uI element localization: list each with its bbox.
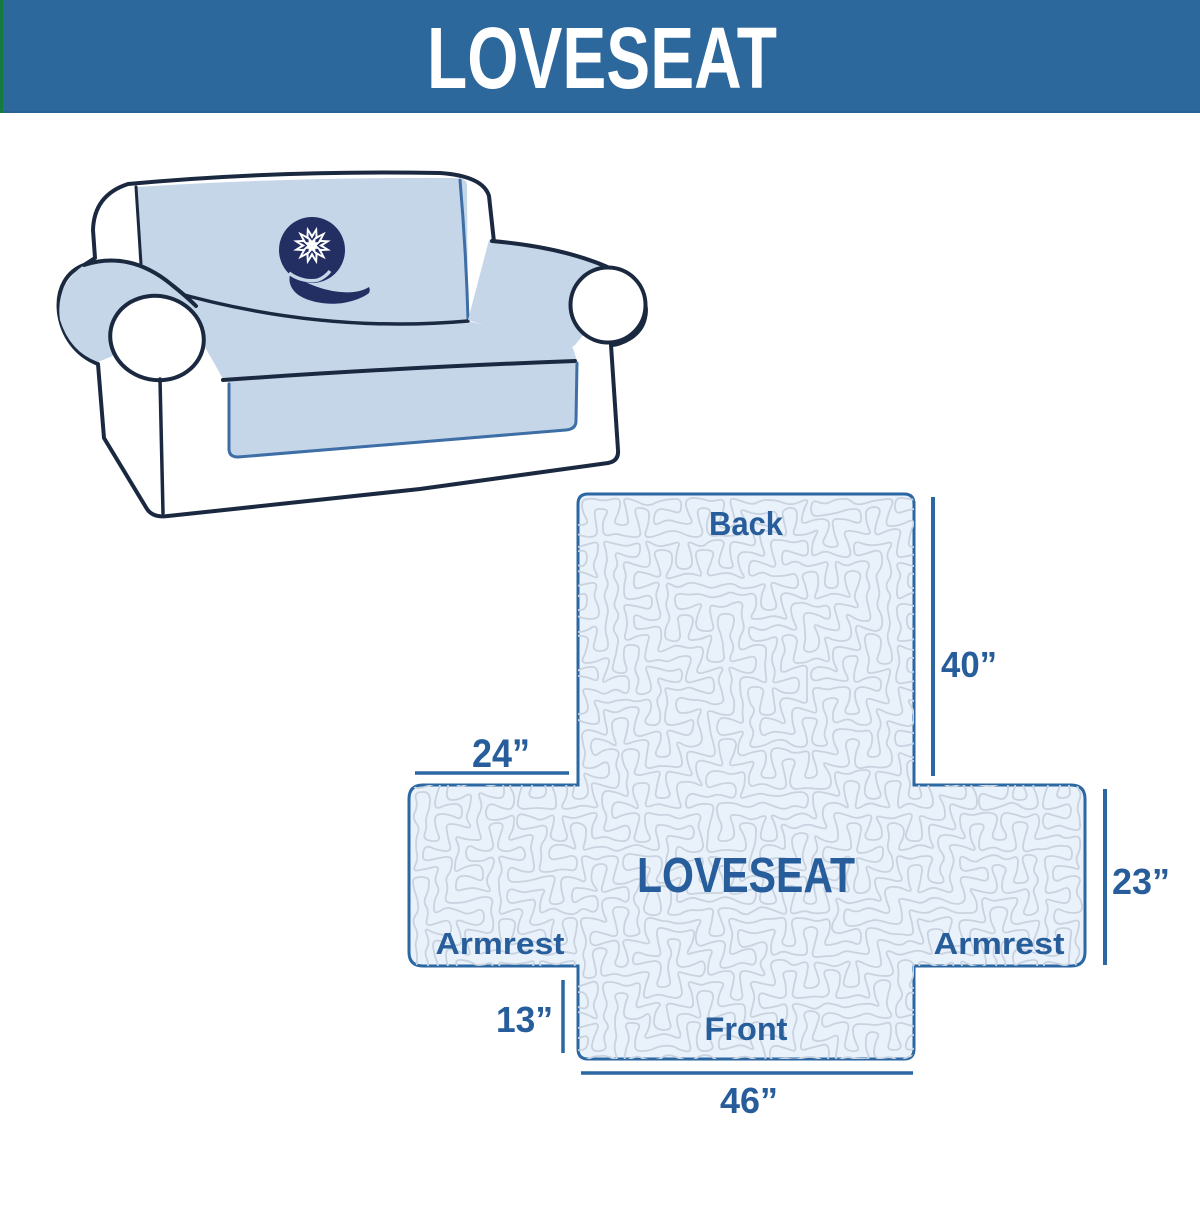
svg-text:40”: 40” <box>941 644 997 685</box>
svg-text:LOVESEAT: LOVESEAT <box>427 10 777 107</box>
svg-text:Armrest: Armrest <box>436 926 565 961</box>
svg-text:23”: 23” <box>1112 861 1170 902</box>
svg-text:LOVESEAT: LOVESEAT <box>637 849 855 903</box>
svg-text:13”: 13” <box>496 999 553 1040</box>
svg-text:Front: Front <box>705 1011 788 1047</box>
svg-text:Back: Back <box>709 505 784 542</box>
svg-text:Armrest: Armrest <box>934 926 1065 961</box>
svg-text:46”: 46” <box>720 1080 778 1121</box>
svg-text:24”: 24” <box>472 732 530 776</box>
